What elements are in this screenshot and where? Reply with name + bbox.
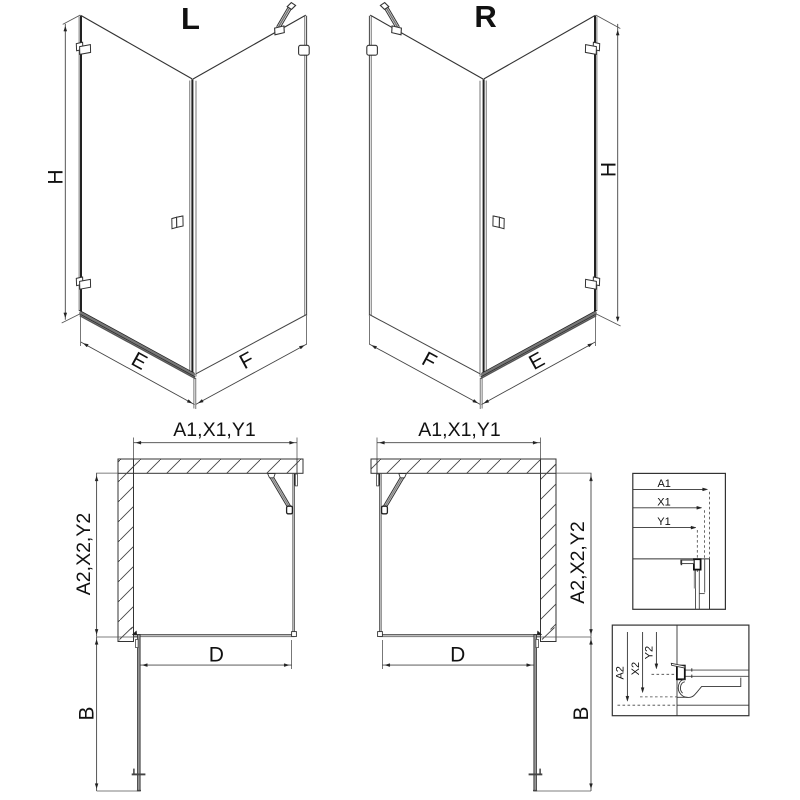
- svg-text:X2: X2: [630, 662, 642, 675]
- svg-text:L: L: [181, 1, 200, 36]
- svg-text:A2,X2,Y2: A2,X2,Y2: [73, 513, 95, 595]
- svg-text:A1,X1,Y1: A1,X1,Y1: [173, 419, 255, 441]
- svg-text:A2,X2,Y2: A2,X2,Y2: [567, 521, 589, 603]
- svg-text:A1,X1,Y1: A1,X1,Y1: [418, 419, 500, 441]
- svg-text:D: D: [209, 643, 224, 666]
- svg-text:B: B: [76, 706, 99, 720]
- svg-text:H: H: [598, 162, 621, 177]
- svg-text:Y1: Y1: [657, 516, 670, 528]
- svg-text:A1: A1: [657, 478, 670, 490]
- svg-text:Y2: Y2: [644, 646, 656, 659]
- svg-text:B: B: [570, 706, 593, 720]
- svg-text:D: D: [450, 643, 465, 666]
- svg-text:X1: X1: [657, 496, 670, 508]
- svg-text:H: H: [45, 169, 68, 184]
- svg-text:R: R: [474, 0, 496, 34]
- svg-text:A2: A2: [614, 666, 626, 679]
